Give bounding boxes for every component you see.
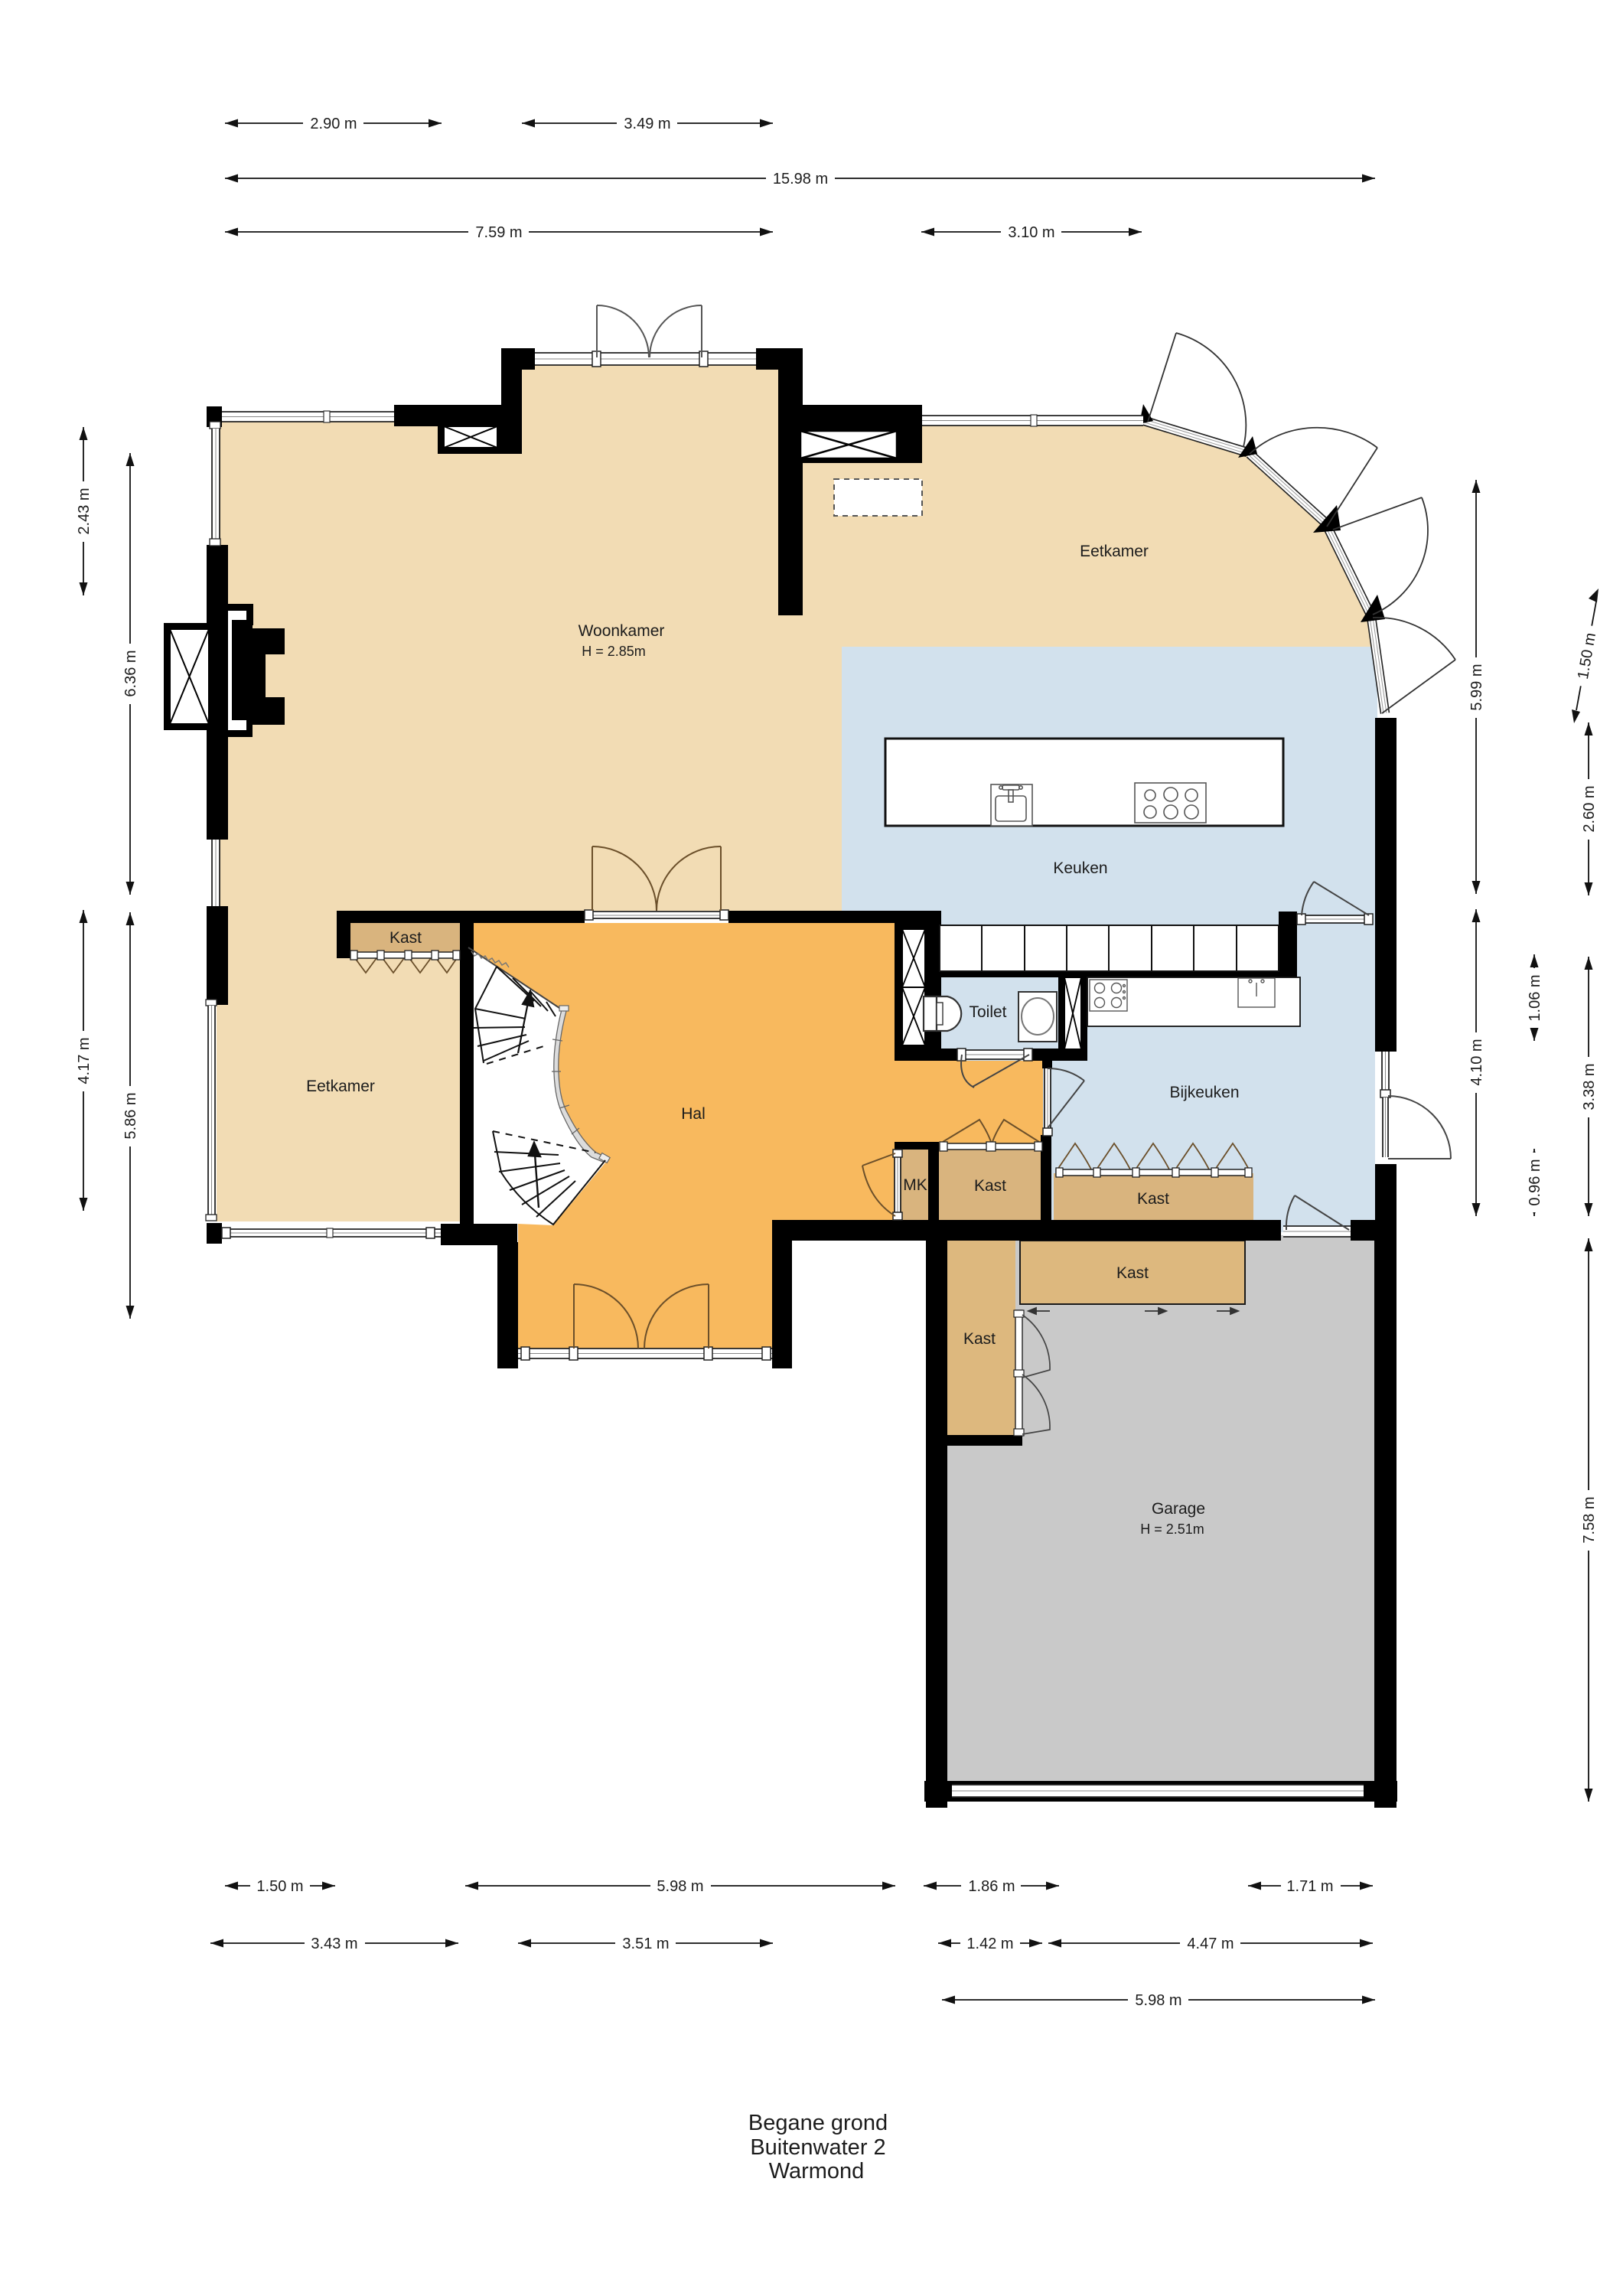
- svg-text:Warmond: Warmond: [769, 2159, 865, 2183]
- svg-text:2.60 m: 2.60 m: [1581, 785, 1598, 832]
- svg-text:3.49 m: 3.49 m: [624, 116, 670, 132]
- svg-text:Toilet: Toilet: [969, 1003, 1006, 1021]
- svg-text:2.90 m: 2.90 m: [310, 116, 357, 132]
- svg-text:7.58 m: 7.58 m: [1581, 1496, 1598, 1543]
- svg-text:5.98 m: 5.98 m: [1135, 1992, 1181, 2009]
- svg-text:Kast: Kast: [1137, 1190, 1169, 1208]
- svg-text:7.59 m: 7.59 m: [475, 224, 522, 241]
- svg-text:Buitenwater 2: Buitenwater 2: [750, 2135, 885, 2160]
- svg-text:3.10 m: 3.10 m: [1008, 224, 1054, 241]
- svg-text:1.06 m: 1.06 m: [1527, 974, 1543, 1021]
- svg-text:H = 2.85m: H = 2.85m: [582, 644, 646, 659]
- svg-text:6.36 m: 6.36 m: [122, 650, 139, 696]
- svg-text:1.42 m: 1.42 m: [966, 1936, 1013, 1952]
- svg-text:5.86 m: 5.86 m: [122, 1092, 139, 1139]
- svg-text:Kast: Kast: [389, 929, 422, 947]
- svg-text:5.98 m: 5.98 m: [657, 1878, 703, 1895]
- svg-text:MK: MK: [903, 1176, 927, 1194]
- svg-text:4.17 m: 4.17 m: [76, 1037, 93, 1084]
- svg-text:Kast: Kast: [974, 1177, 1006, 1195]
- svg-text:0.96 m: 0.96 m: [1527, 1159, 1543, 1205]
- svg-text:Kast: Kast: [963, 1330, 996, 1348]
- svg-text:5.99 m: 5.99 m: [1468, 664, 1485, 710]
- svg-text:3.51 m: 3.51 m: [622, 1936, 669, 1952]
- svg-text:2.43 m: 2.43 m: [76, 488, 93, 534]
- svg-text:4.47 m: 4.47 m: [1187, 1936, 1234, 1952]
- svg-text:Hal: Hal: [681, 1105, 706, 1123]
- svg-text:3.38 m: 3.38 m: [1581, 1063, 1598, 1110]
- svg-text:1.86 m: 1.86 m: [968, 1878, 1015, 1895]
- svg-text:Woonkamer: Woonkamer: [578, 622, 665, 640]
- svg-text:4.10 m: 4.10 m: [1468, 1039, 1485, 1085]
- svg-text:1.71 m: 1.71 m: [1286, 1878, 1333, 1895]
- svg-text:3.43 m: 3.43 m: [311, 1936, 357, 1952]
- svg-text:Eetkamer: Eetkamer: [306, 1078, 375, 1095]
- svg-text:Eetkamer: Eetkamer: [1080, 543, 1149, 560]
- svg-text:H = 2.51m: H = 2.51m: [1140, 1521, 1204, 1537]
- svg-text:Kast: Kast: [1116, 1264, 1149, 1282]
- svg-text:Garage: Garage: [1152, 1500, 1205, 1518]
- svg-text:15.98 m: 15.98 m: [773, 171, 828, 188]
- svg-text:1.50 m: 1.50 m: [256, 1878, 303, 1895]
- svg-text:Bijkeuken: Bijkeuken: [1169, 1084, 1239, 1101]
- svg-text:Begane grond: Begane grond: [748, 2111, 888, 2135]
- svg-text:Keuken: Keuken: [1053, 859, 1107, 877]
